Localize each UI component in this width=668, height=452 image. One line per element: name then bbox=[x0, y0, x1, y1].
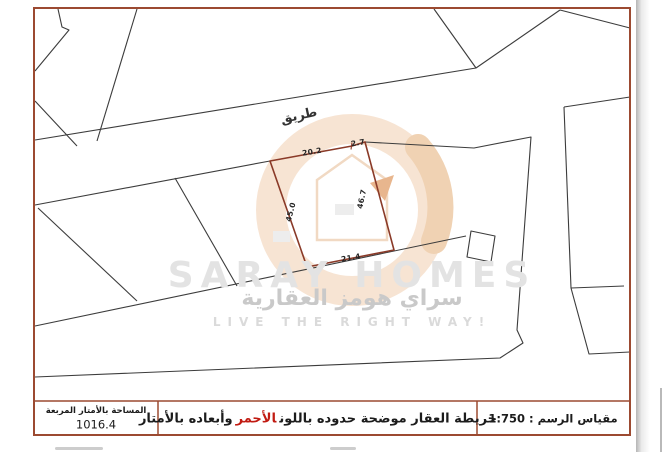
map-note-red-word: الأحمر bbox=[233, 412, 280, 427]
watermark-tagline: LIVE THE RIGHT WAY! bbox=[213, 316, 491, 328]
dimension-top-right: 2.7 bbox=[350, 138, 365, 148]
area-value: 1016.4 bbox=[76, 419, 116, 431]
map-note: خريطة العقار موضحة حدوده باللونالأحمروأب… bbox=[139, 413, 497, 426]
scan-edge-shadow bbox=[636, 0, 650, 452]
area-label: المساحة بالأمتار المربعة bbox=[46, 407, 147, 416]
scan-smudge bbox=[55, 447, 103, 450]
map-note-part1: خريطة العقار موضحة حدوده باللون bbox=[279, 412, 497, 427]
site-plan-drawing bbox=[0, 0, 668, 452]
scanned-plot-map-page: SARAY HOMES سراي هومز العقارية LIVE THE … bbox=[0, 0, 668, 452]
scan-edge-line bbox=[660, 388, 662, 452]
map-note-part2: وأبعاده بالأمتار bbox=[139, 412, 233, 427]
house-icon bbox=[317, 155, 387, 240]
watermark-brand-ar: سراي هومز العقارية bbox=[241, 288, 462, 310]
scan-smudge bbox=[330, 447, 356, 450]
scale-label: مقياس الرسم : 1:750 bbox=[488, 413, 617, 425]
